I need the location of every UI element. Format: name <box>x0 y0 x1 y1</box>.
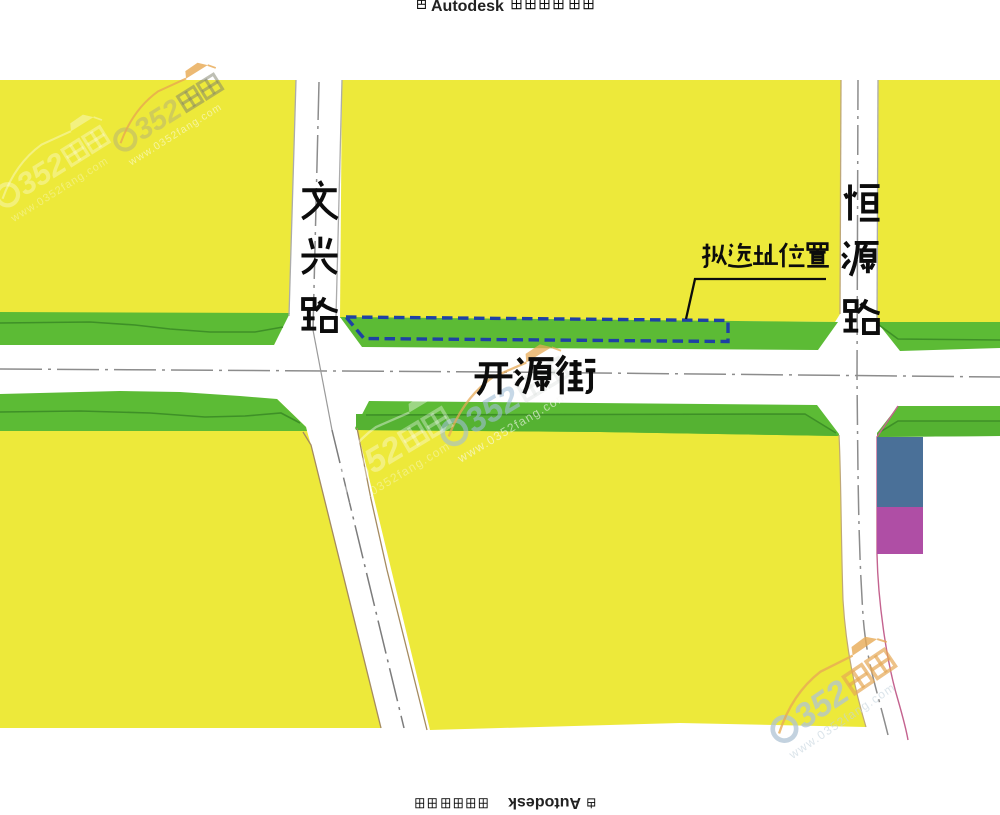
svg-text:Autodesk: Autodesk <box>508 794 581 811</box>
svg-text:Autodesk: Autodesk <box>431 0 504 15</box>
